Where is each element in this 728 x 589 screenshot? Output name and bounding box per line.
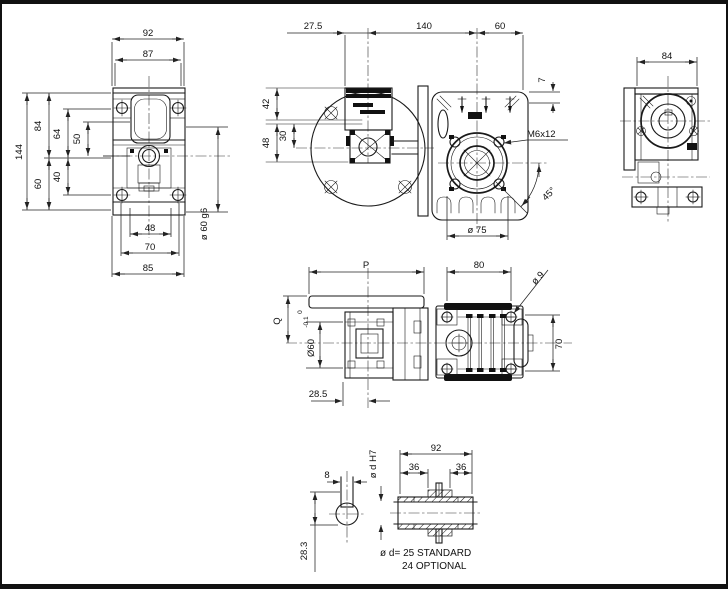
dim-42: 42	[261, 99, 272, 110]
dim-36-left: 36	[409, 462, 420, 473]
note-optional: 24 OPTIONAL	[402, 561, 467, 572]
dim-hub-60: Ø60	[306, 339, 317, 357]
dim-key-8: 8	[324, 470, 329, 481]
dim-hub-tol-lo: -0.1	[303, 316, 310, 328]
front-view: 92 87 144 84 60 64 40 50 48 70	[14, 28, 231, 277]
note-standard: ø d= 25 STANDARD	[380, 548, 471, 559]
side-view: 84	[620, 51, 712, 222]
dim-width-92: 92	[143, 28, 154, 39]
dim-36-right: 36	[456, 462, 467, 473]
dim-base-85: 85	[143, 263, 154, 274]
dim-height-144: 144	[14, 144, 25, 160]
top-view: 27.5 140 60 42 48 30 7 M6x12 ø 75 45°	[261, 21, 568, 240]
dim-height-84: 84	[33, 121, 44, 132]
dim-height-50: 50	[72, 134, 83, 145]
dim-base-48: 48	[145, 223, 156, 234]
dim-60-top: 60	[495, 21, 506, 32]
dim-base-70: 70	[145, 242, 156, 253]
dim-hub-tol-hi: 0	[297, 310, 304, 314]
thread-callout: M6x12	[527, 129, 556, 140]
dim-height-40: 40	[52, 172, 63, 183]
dim-height-60: 60	[33, 179, 44, 190]
dim-bore: ø d H7	[368, 450, 379, 479]
dim-140: 140	[416, 21, 432, 32]
dim-width-87: 87	[143, 49, 154, 60]
dim-28-3: 28.3	[299, 542, 310, 561]
dim-bolt-circle-75: ø 75	[467, 225, 486, 236]
dim-27-5: 27.5	[304, 21, 323, 32]
dim-70: 70	[554, 339, 565, 350]
dim-7: 7	[537, 77, 548, 82]
dim-shaft-92: 92	[431, 443, 442, 454]
dim-output-spigot: ø 60 g6	[199, 208, 210, 240]
gearbox-drawing: 92 87 144 84 60 64 40 50 48 70	[0, 0, 728, 589]
lateral-view: P 80 ø 9 Q Ø60 0 -0.1 70 28.5	[272, 260, 572, 408]
cooling-fins	[458, 97, 514, 113]
dim-hole-9: ø 9	[529, 270, 546, 288]
dim-28-5: 28.5	[309, 389, 328, 400]
technical-drawing-page: 92 87 144 84 60 64 40 50 48 70	[0, 0, 728, 589]
dim-width-84-side: 84	[662, 51, 673, 62]
dim-48-top: 48	[261, 138, 272, 149]
dim-height-64: 64	[52, 129, 63, 140]
dim-80: 80	[474, 260, 485, 271]
dim-30: 30	[278, 131, 289, 142]
shaft-detail-view: 8 28.3 92 36 36 ø d H7	[299, 443, 482, 572]
dim-angle-45: 45°	[540, 185, 558, 203]
dim-Q: Q	[272, 317, 283, 324]
dim-P: P	[363, 260, 369, 271]
